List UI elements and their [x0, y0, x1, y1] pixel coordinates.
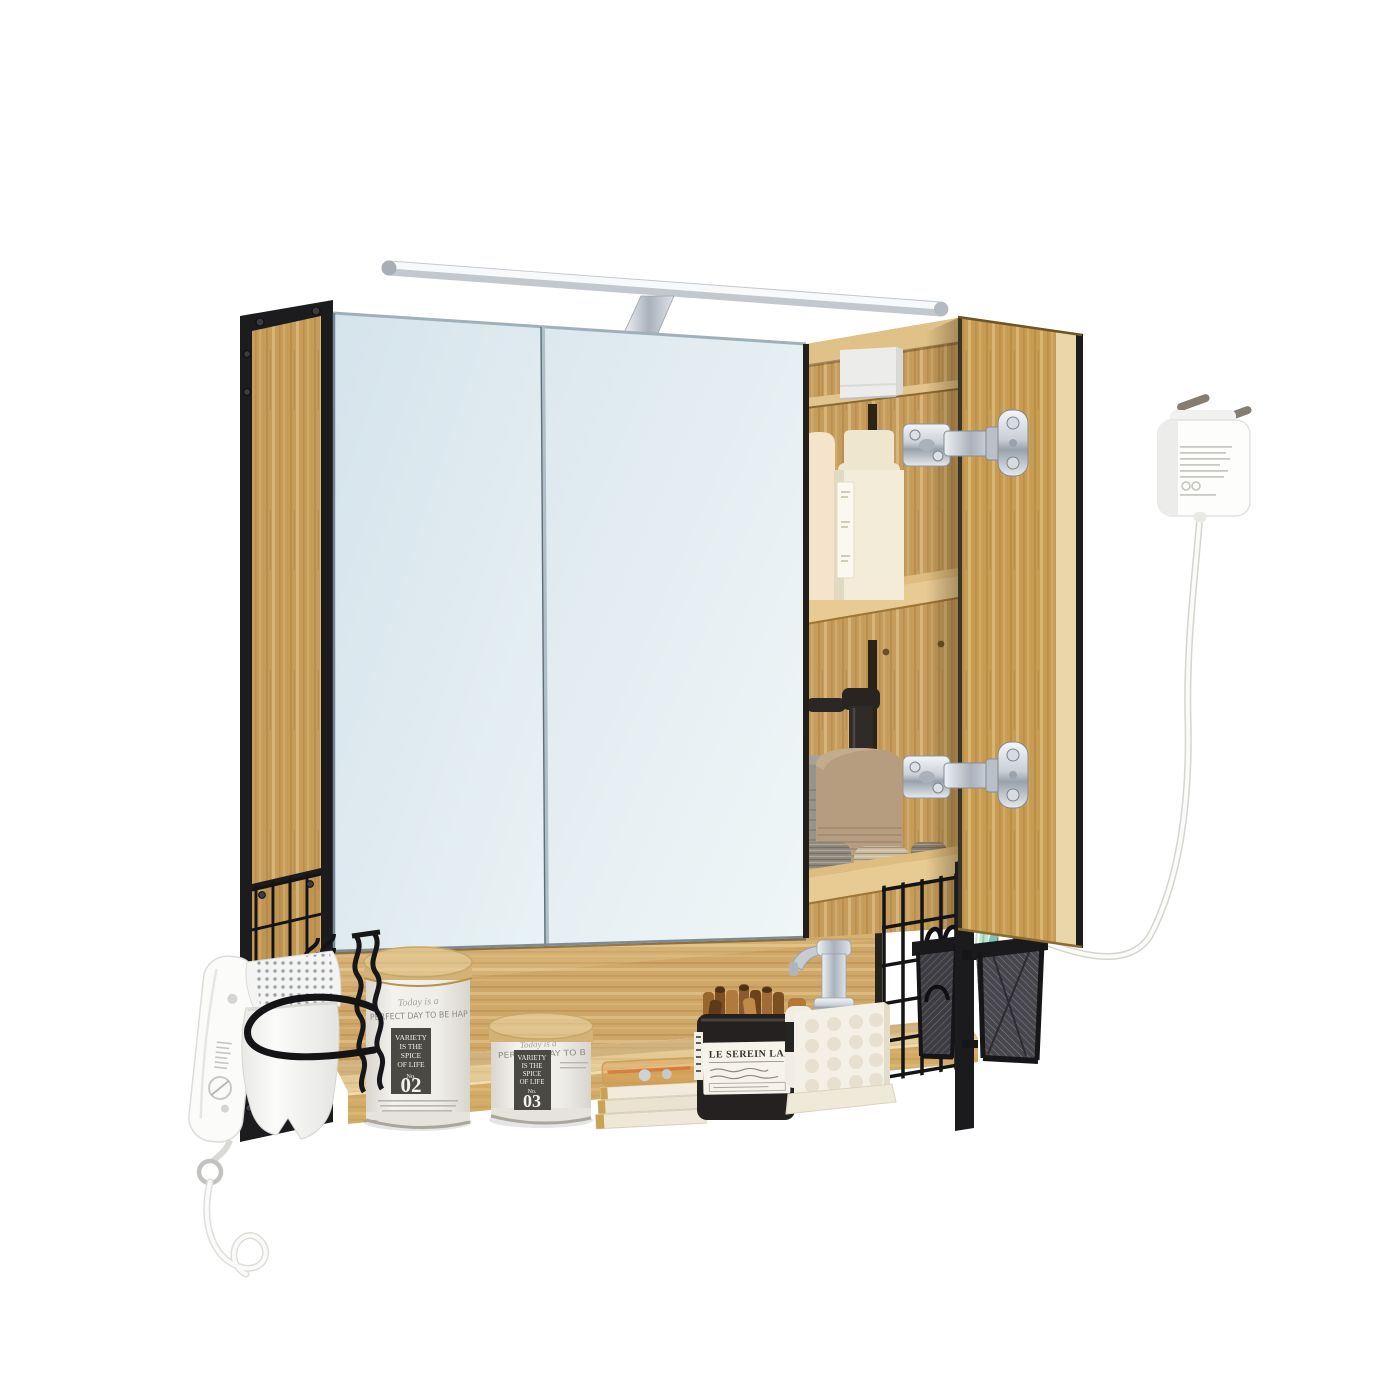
light-mount-arm: [624, 296, 674, 333]
cinnamon-jar: LE SEREIN LAB: [694, 984, 795, 1120]
storage-canister-02: Today is a PERFECT DAY TO BE HAP VARIETY…: [364, 947, 472, 1131]
badge-text: IS THE: [522, 1063, 543, 1070]
amber-clear-tray: [602, 1058, 697, 1087]
mirror-door-left: [333, 313, 545, 952]
light-end-cap: [934, 302, 948, 316]
dryer-body: [242, 1002, 339, 1139]
cream-bottles: [803, 430, 904, 600]
door-cast-shadow: [926, 318, 958, 933]
mirror-doors: [333, 313, 809, 952]
power-plug-adapter: [1158, 393, 1253, 522]
cabinet-interior: [799, 318, 958, 938]
cabinet-scene: Today is a PERFECT DAY TO BE HAP VARIETY…: [0, 0, 1400, 1400]
left-side-wood-upper: [252, 316, 321, 884]
badge-number: 03: [523, 1091, 541, 1111]
product-photo-stage: Today is a PERFECT DAY TO BE HAP VARIETY…: [0, 0, 1400, 1400]
stacked-trays: [593, 1057, 706, 1129]
badge-text: VARIETY: [395, 1033, 428, 1042]
tall-cream-bottle: [834, 430, 904, 600]
mesh-pen-cup: [962, 935, 1048, 1062]
door-edge-band: [1056, 330, 1078, 947]
dryer-cord: [199, 1140, 266, 1274]
badge-text: OF LIFE: [397, 1060, 425, 1069]
badge-text: OF LIFE: [520, 1079, 545, 1086]
badge-text: VARIETY: [518, 1055, 547, 1062]
jar-barcode: [694, 1032, 703, 1080]
light-end-cap: [382, 261, 397, 276]
badge-text: SPICE: [401, 1051, 422, 1060]
badge-text: SPICE: [523, 1071, 542, 1078]
jar-brand: LE SEREIN LAB: [709, 1048, 792, 1060]
mesh-basket-hanging: [912, 927, 961, 1058]
badge-text: IS THE: [400, 1042, 423, 1051]
door-gap: [803, 344, 809, 938]
mirror-door-right: [541, 327, 806, 946]
canister02-script: Today is a: [398, 996, 439, 1009]
badge-number: 02: [401, 1073, 422, 1097]
storage-canister-03: Today is a PERFECT DAY TO B VARIETY IS T…: [489, 1013, 593, 1128]
white-storage-box: [840, 347, 903, 399]
door-edge-black: [1076, 333, 1083, 948]
jar-label: LE SEREIN LAB: [703, 1041, 793, 1095]
